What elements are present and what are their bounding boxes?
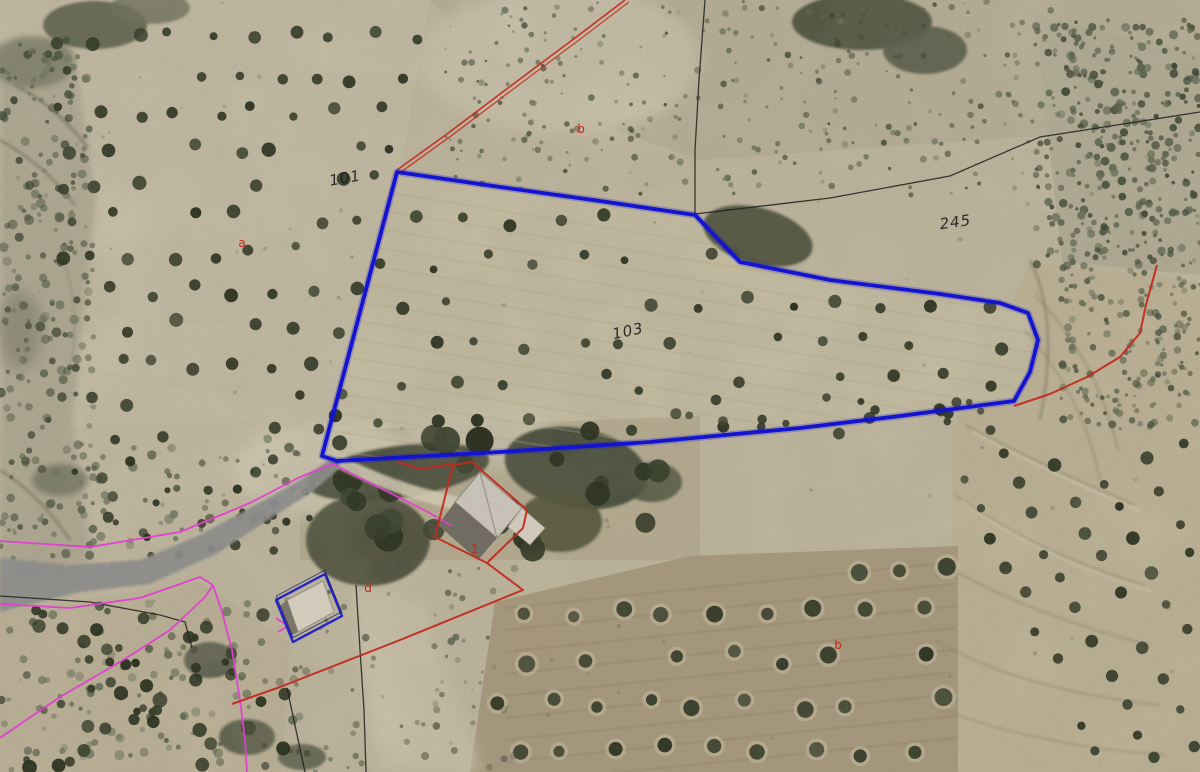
subparcel-letter-label-1: 1 bbox=[471, 542, 479, 556]
subparcel-letter-label-b-top: b bbox=[577, 122, 585, 136]
aerial-photo-map[interactable]: 101103245abbd1 bbox=[0, 0, 1200, 772]
aerial-map-viewport[interactable]: 101103245abbd1 bbox=[0, 0, 1200, 772]
subparcel-letter-label-a: a bbox=[238, 236, 245, 250]
subparcel-letter-label-b-bottom: b bbox=[834, 638, 842, 652]
subparcel-letter-label-d: d bbox=[364, 581, 372, 595]
